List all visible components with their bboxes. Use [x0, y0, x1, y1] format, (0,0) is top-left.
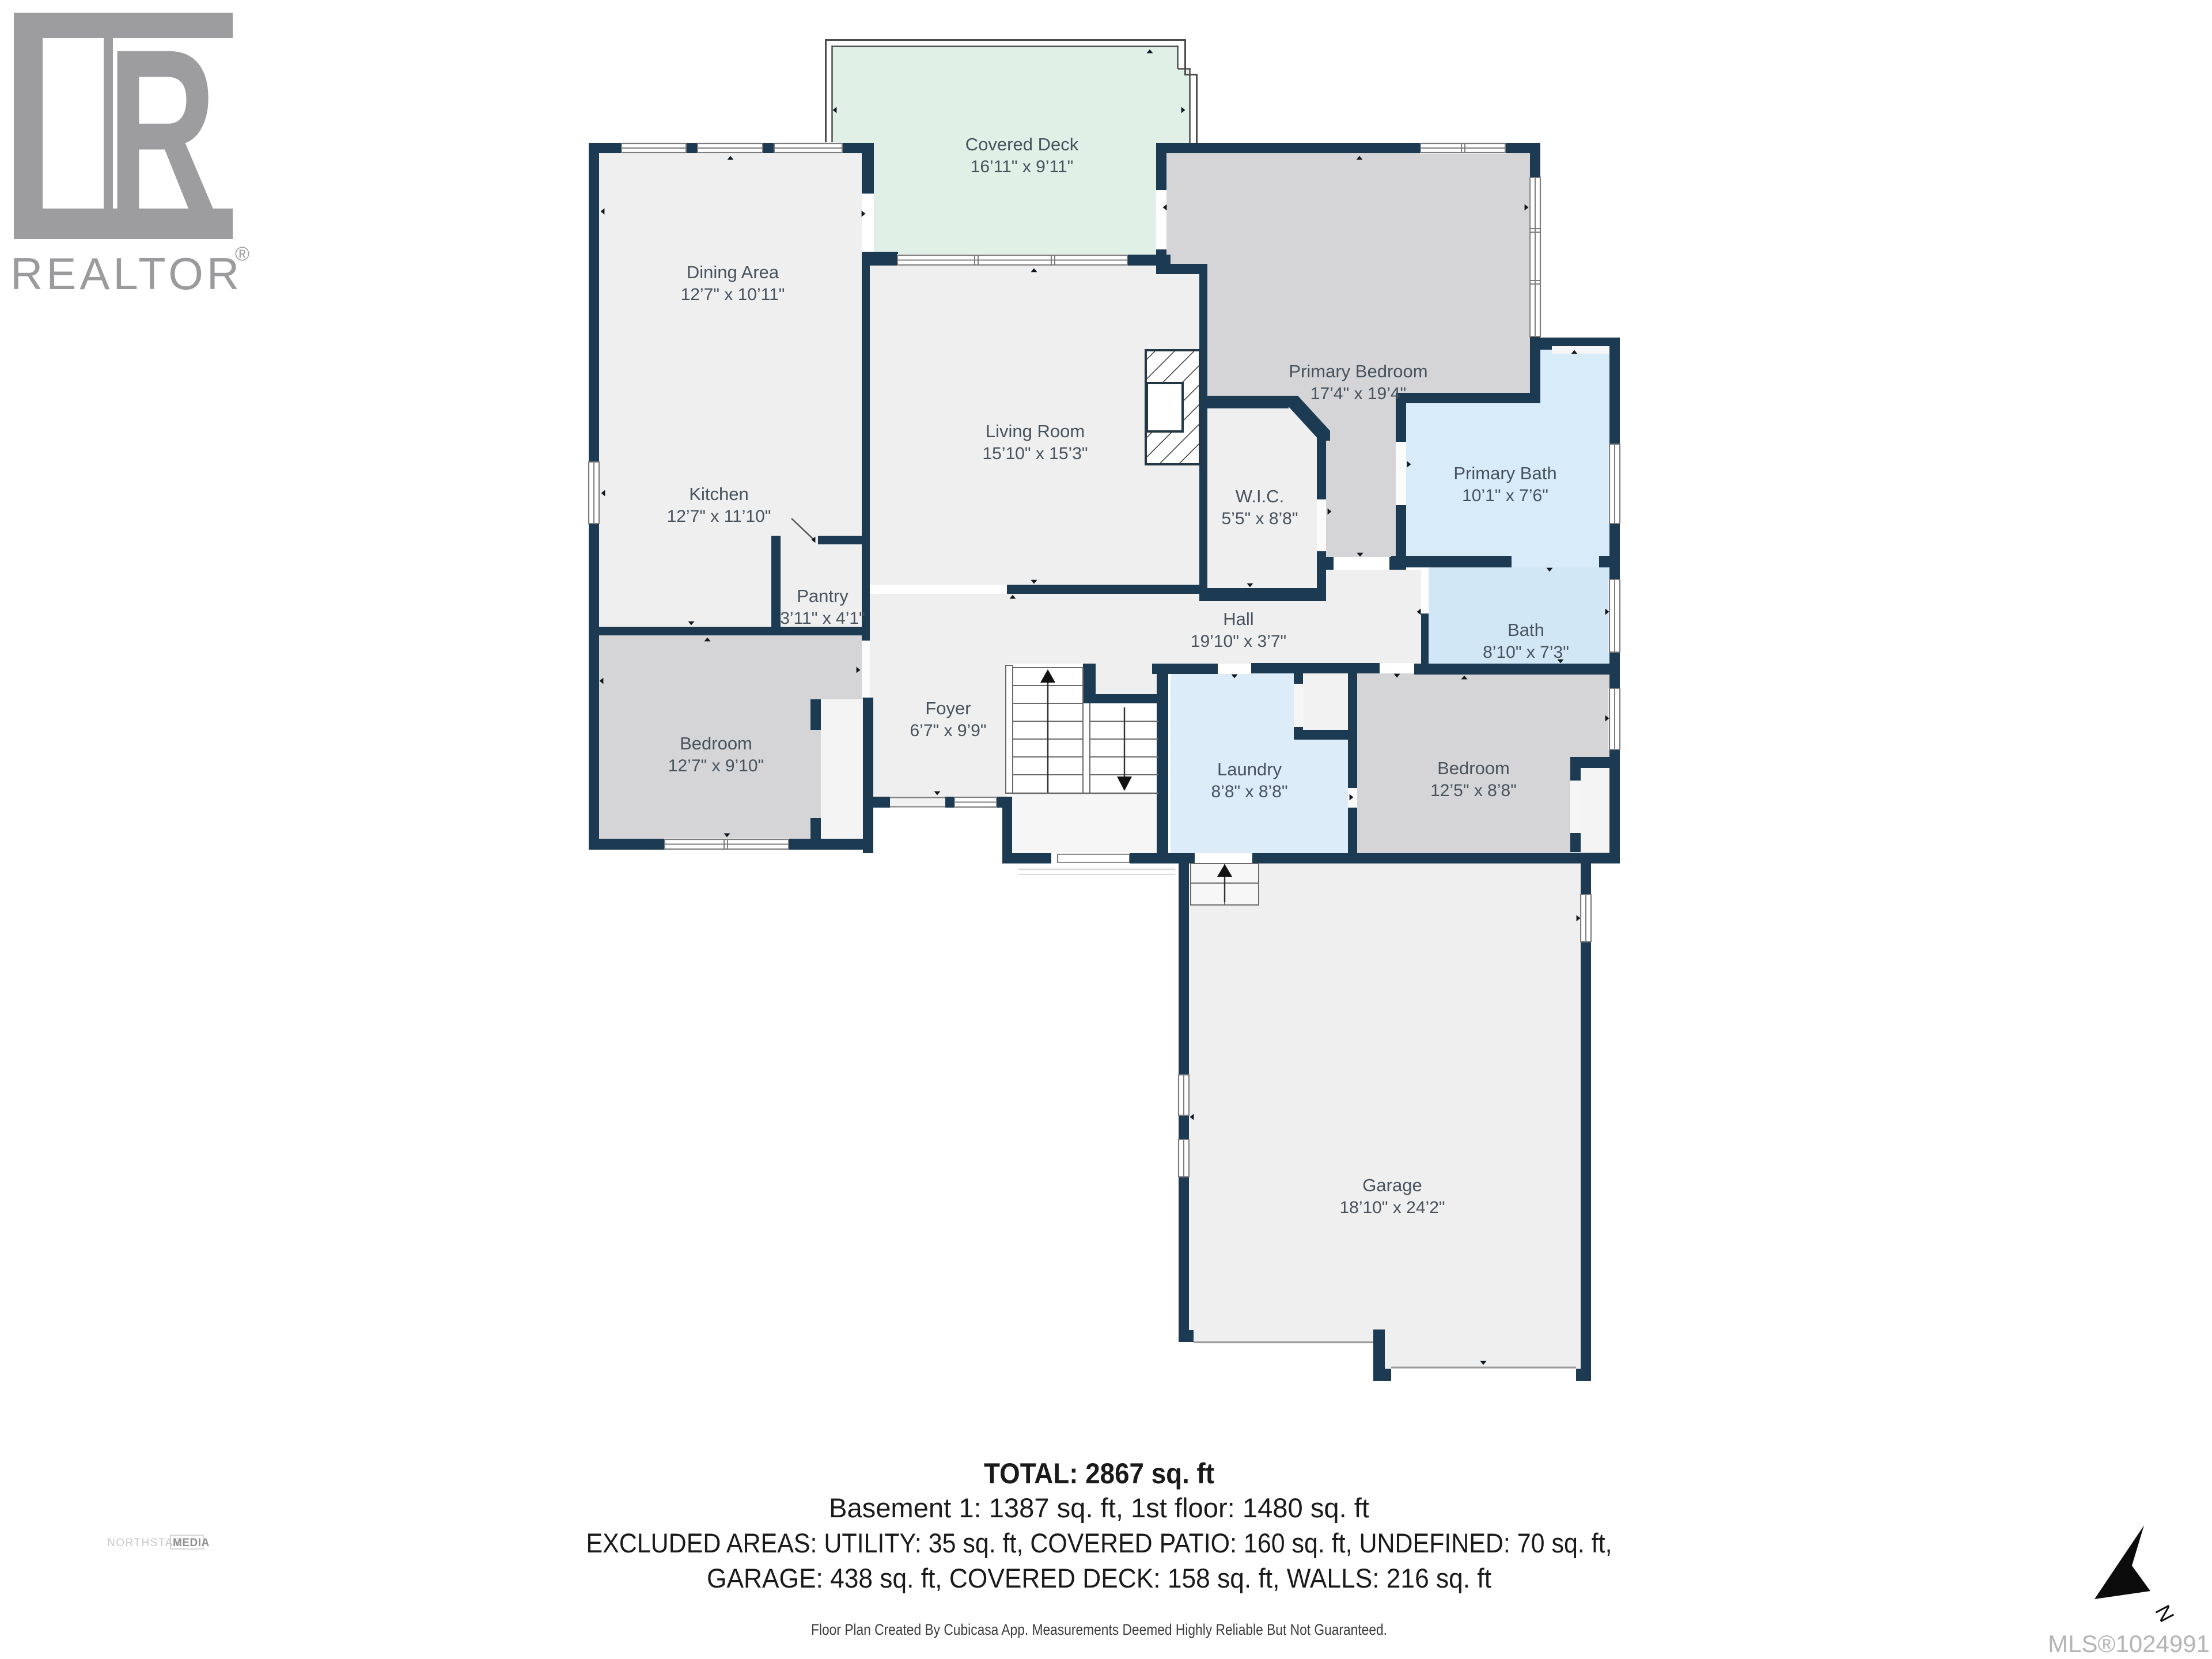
svg-text:W.I.C.: W.I.C.: [1236, 486, 1284, 506]
svg-text:Primary Bath: Primary Bath: [1453, 463, 1556, 483]
svg-text:5’5" x 8’8": 5’5" x 8’8": [1221, 509, 1298, 528]
svg-text:12’5" x 8’8": 12’5" x 8’8": [1430, 781, 1517, 800]
svg-text:Dining Area: Dining Area: [687, 262, 779, 282]
svg-text:REALTOR: REALTOR: [10, 248, 243, 299]
svg-text:17’4" x 19’4": 17’4" x 19’4": [1310, 384, 1406, 403]
svg-text:Basement 1: 1387 sq. ft, 1st f: Basement 1: 1387 sq. ft, 1st floor: 1480…: [829, 1493, 1369, 1523]
svg-text:Covered Deck: Covered Deck: [965, 134, 1079, 154]
svg-text:12’7" x 10’11": 12’7" x 10’11": [681, 285, 785, 304]
svg-text:EXCLUDED AREAS: UTILITY: 35 sq: EXCLUDED AREAS: UTILITY: 35 sq. ft, COVE…: [586, 1528, 1612, 1558]
svg-text:Bedroom: Bedroom: [1437, 758, 1510, 778]
svg-text:®: ®: [235, 243, 249, 265]
svg-text:Living Room: Living Room: [986, 421, 1085, 441]
svg-text:GARAGE: 438 sq. ft, COVERED DE: GARAGE: 438 sq. ft, COVERED DECK: 158 sq…: [707, 1563, 1491, 1593]
svg-text:Pantry: Pantry: [797, 586, 849, 606]
svg-text:12’7" x 9’10": 12’7" x 9’10": [668, 756, 764, 775]
svg-text:Hall: Hall: [1223, 609, 1253, 629]
svg-text:8’8" x 8’8": 8’8" x 8’8": [1211, 782, 1287, 801]
svg-text:10’1" x 7’6": 10’1" x 7’6": [1462, 486, 1548, 505]
svg-text:3’11" x 4’1": 3’11" x 4’1": [780, 609, 865, 628]
svg-text:18’10" x 24’2": 18’10" x 24’2": [1339, 1198, 1445, 1217]
svg-text:Primary Bedroom: Primary Bedroom: [1289, 361, 1427, 381]
svg-text:19’10" x 3’7": 19’10" x 3’7": [1191, 632, 1286, 651]
svg-text:TOTAL: 2867 sq. ft: TOTAL: 2867 sq. ft: [984, 1457, 1214, 1490]
svg-text:Bath: Bath: [1508, 620, 1544, 640]
svg-text:MLS®1024991: MLS®1024991: [2048, 1630, 2210, 1657]
svg-text:15’10" x 15’3": 15’10" x 15’3": [982, 444, 1088, 463]
svg-text:MEDIA: MEDIA: [173, 1537, 210, 1549]
svg-text:R: R: [107, 1, 217, 259]
svg-text:Floor Plan Created By Cubicasa: Floor Plan Created By Cubicasa App. Meas…: [811, 1621, 1387, 1638]
svg-text:Bedroom: Bedroom: [680, 733, 752, 753]
svg-text:Garage: Garage: [1362, 1175, 1422, 1195]
svg-text:12’7" x 11’10": 12’7" x 11’10": [667, 507, 771, 526]
svg-text:8’10" x 7’3": 8’10" x 7’3": [1483, 643, 1569, 662]
svg-text:Laundry: Laundry: [1217, 759, 1282, 779]
svg-text:Kitchen: Kitchen: [689, 484, 748, 504]
svg-text:Foyer: Foyer: [925, 698, 971, 718]
svg-text:16’11" x 9’11": 16’11" x 9’11": [971, 157, 1074, 176]
svg-text:6’7" x 9’9": 6’7" x 9’9": [910, 721, 986, 740]
